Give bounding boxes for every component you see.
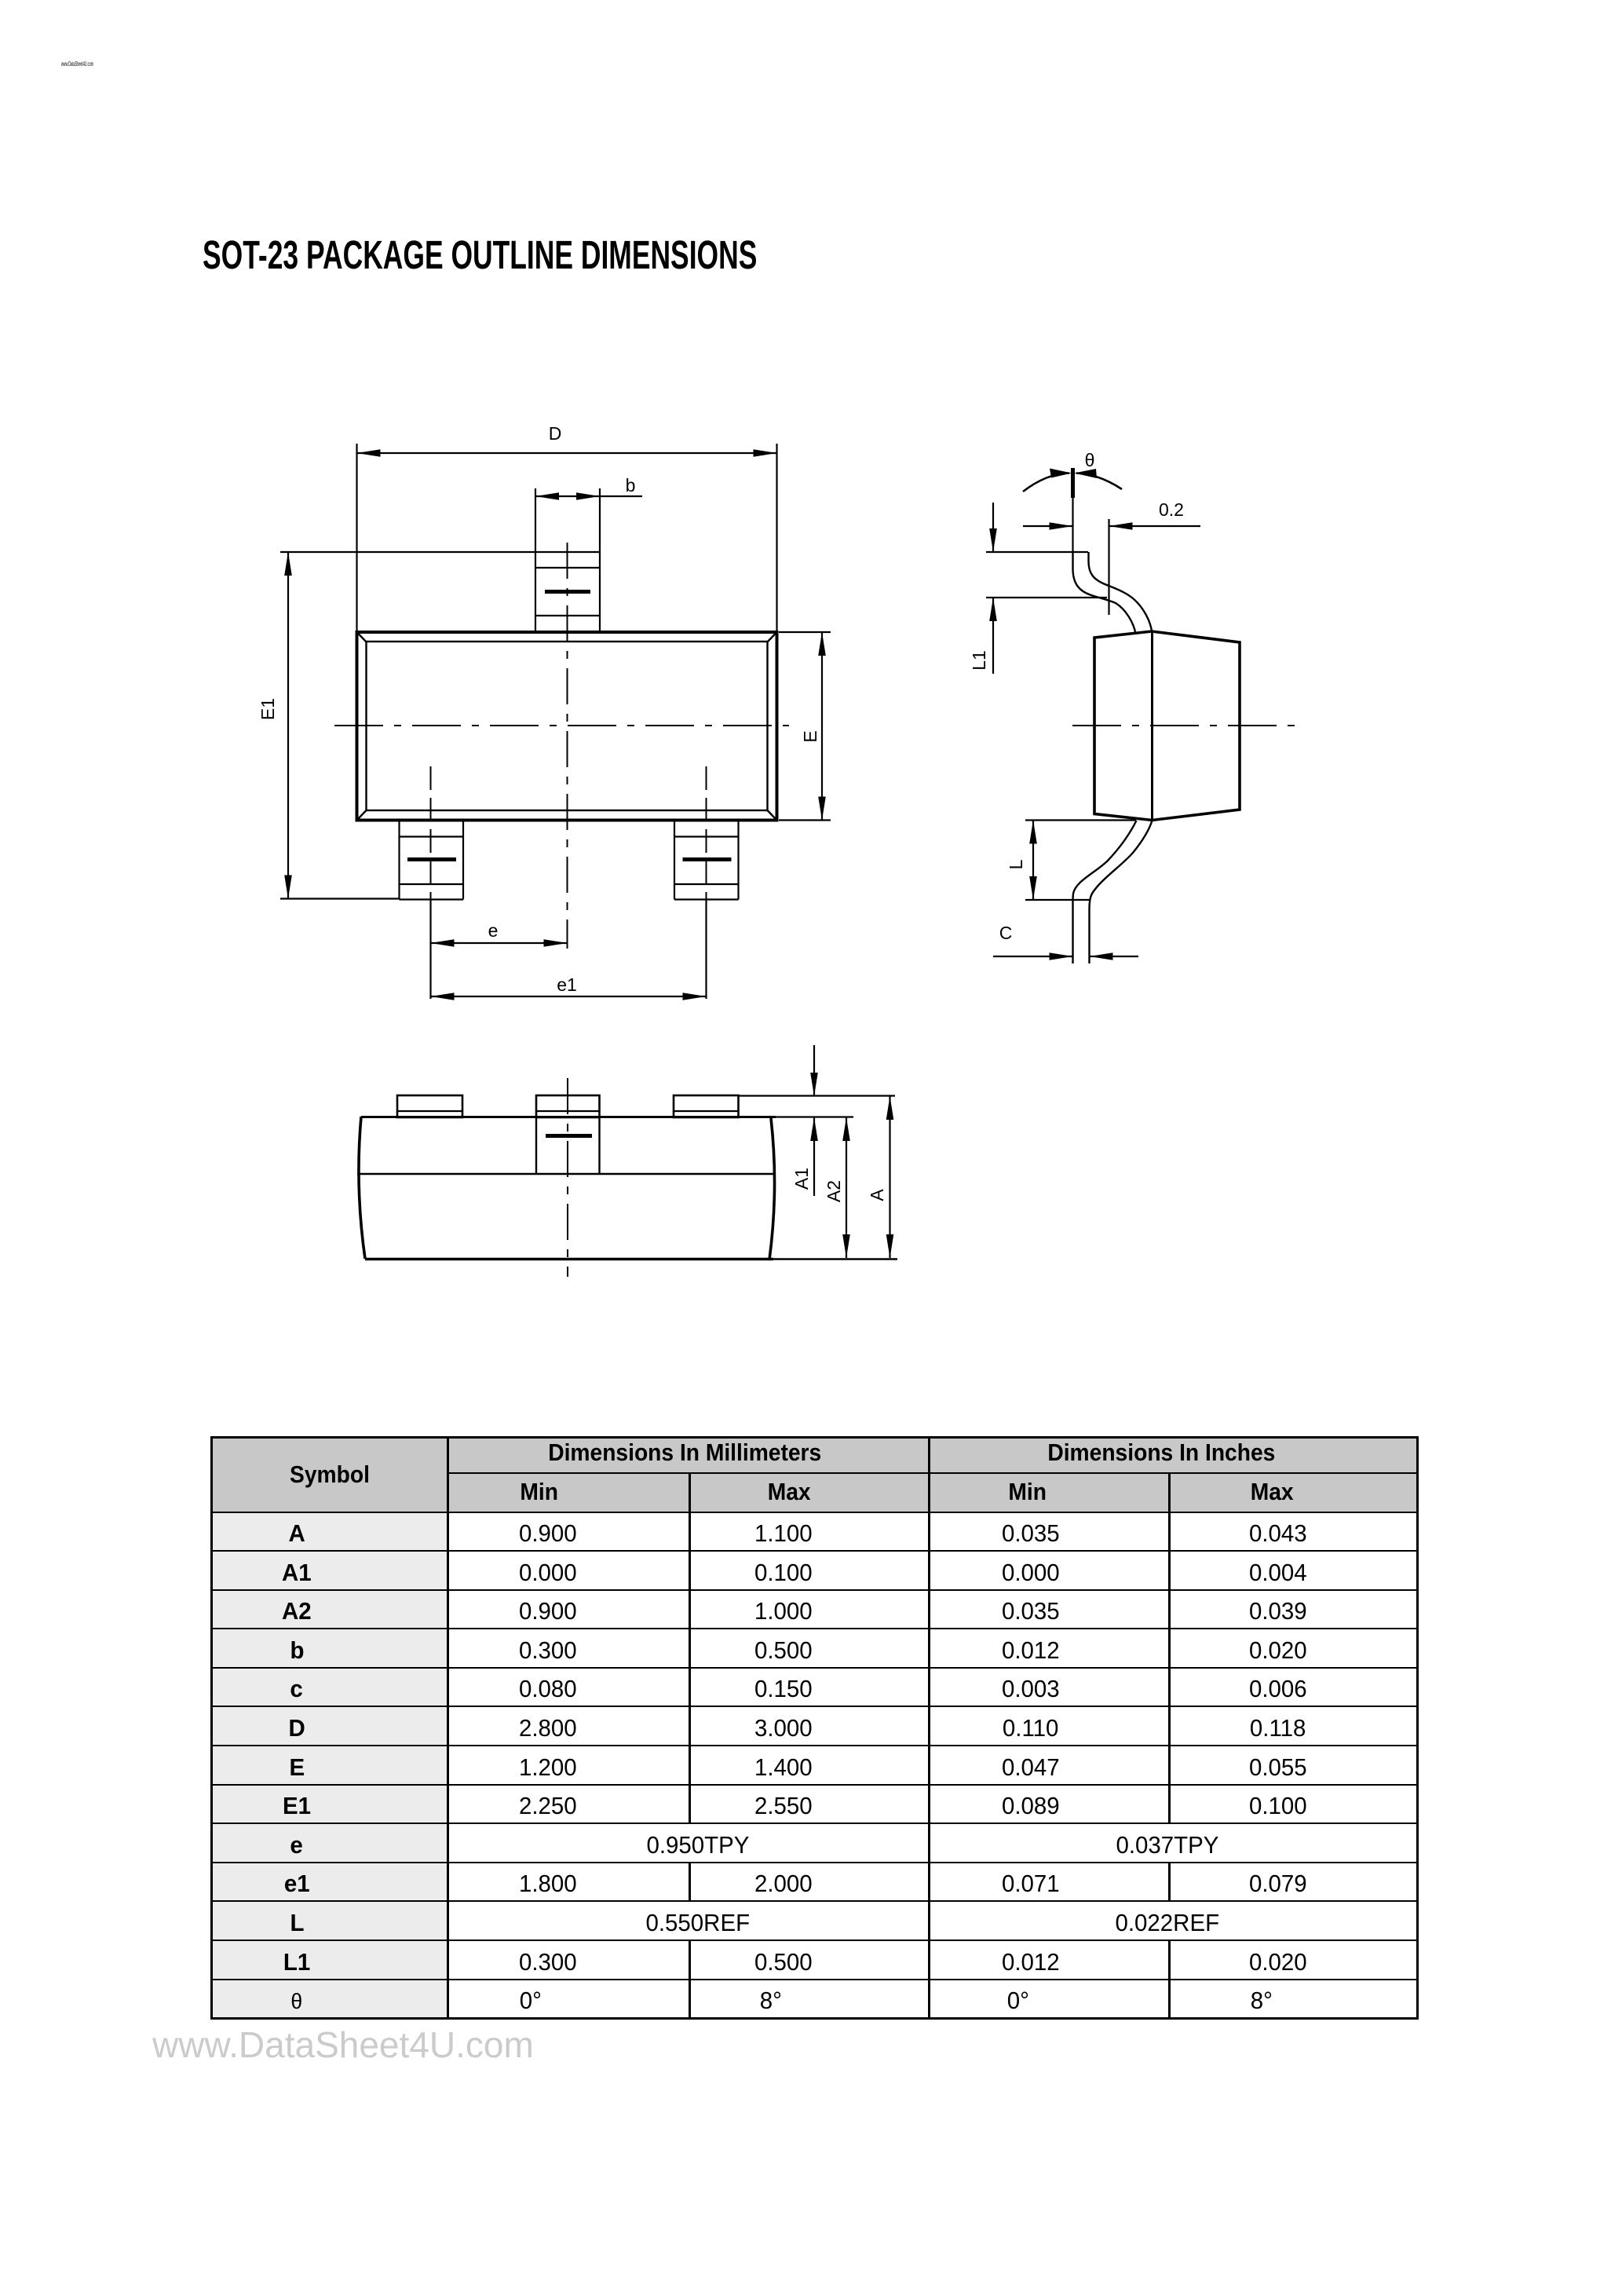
svg-text:L: L [1006, 859, 1026, 869]
svg-text:D: D [549, 423, 562, 444]
svg-text:L1: L1 [969, 650, 989, 671]
svg-text:E1: E1 [258, 698, 278, 720]
svg-text:e: e [488, 920, 499, 941]
svg-text:C: C [999, 923, 1013, 943]
svg-text:E: E [800, 730, 820, 742]
svg-text:A: A [867, 1189, 887, 1201]
svg-text:b: b [626, 475, 636, 495]
svg-text:A2: A2 [824, 1180, 844, 1202]
svg-text:A1: A1 [791, 1168, 812, 1190]
svg-text:0.2: 0.2 [1159, 499, 1184, 520]
svg-text:e1: e1 [557, 974, 577, 995]
svg-text:θ: θ [1085, 450, 1095, 470]
